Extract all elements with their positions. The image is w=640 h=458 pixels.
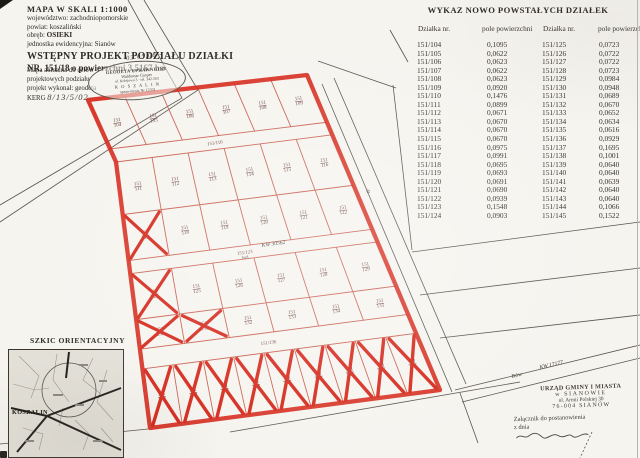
col-header-plot: Działka nr. bbox=[418, 24, 450, 33]
parcel-divider-line bbox=[200, 205, 210, 250]
unit-label: jednostka ewidencyjna: bbox=[27, 40, 93, 48]
parcel-divider-line bbox=[198, 88, 219, 136]
plot-area: 0,0903 bbox=[487, 211, 507, 220]
parcel-divider-line bbox=[271, 79, 291, 127]
crossed-plot-x bbox=[217, 359, 231, 417]
voivodeship-value: zachodniopomorskie bbox=[70, 14, 128, 22]
parcel-divider-line bbox=[266, 303, 274, 332]
ditch-label: Rów bbox=[511, 372, 524, 380]
parcel-line bbox=[318, 61, 396, 88]
scanned-map-page: { "title_block": { "scale_line": "MAPA W… bbox=[0, 0, 640, 458]
map-scale: MAPA W SKALI 1:1000 bbox=[27, 4, 245, 14]
district-value: OSIEKI bbox=[47, 31, 73, 39]
parcel-divider-line bbox=[254, 258, 266, 303]
parcel-divider-line bbox=[309, 297, 318, 326]
voivodeship-label: województwo: bbox=[27, 14, 68, 22]
parcel-table-title: WYKAZ NOWO POWSTAŁYCH DZIAŁEK bbox=[398, 5, 638, 15]
parcel-line bbox=[420, 268, 640, 295]
parcel-divider-line bbox=[353, 292, 364, 321]
col-header-plot: Działka nr. bbox=[543, 24, 575, 33]
scan-edge-line bbox=[637, 0, 638, 458]
road-abbrev-label: dr. bbox=[364, 189, 371, 196]
parcel-divider-line bbox=[238, 200, 250, 245]
parcel-line bbox=[393, 85, 412, 250]
crossed-plot-x bbox=[187, 311, 221, 341]
attachment-note: Załącznik do postanowienia z dnia bbox=[514, 412, 639, 441]
parcel-divider-line bbox=[152, 157, 161, 209]
plot-area: 0,1522 bbox=[599, 211, 619, 220]
inset-minor-roads bbox=[13, 354, 113, 450]
road-parcel-label: 151/136 bbox=[261, 340, 278, 347]
crossed-plot-x bbox=[153, 367, 171, 425]
county-label: powiat: bbox=[27, 23, 48, 31]
orientation-sketch: KOSZALIN bbox=[8, 349, 124, 458]
crossed-plot-x bbox=[410, 336, 414, 392]
district-label: obręb: bbox=[27, 31, 45, 39]
voivodeship-line: województwo: zachodniopomorskie bbox=[27, 14, 245, 23]
crossed-plot-x bbox=[249, 355, 262, 413]
plot-number: 151/145 bbox=[542, 212, 599, 221]
crossed-plot-x bbox=[185, 363, 201, 421]
parcel-divider-line bbox=[234, 83, 255, 131]
inset-area-circle bbox=[42, 363, 96, 417]
kerg-label: KERG bbox=[27, 95, 46, 102]
parcel-table-left: 151/1040,1095151/1050,0622151/1060,06231… bbox=[417, 41, 507, 220]
parcel-divider-line bbox=[277, 195, 291, 240]
office-stamp: URZĄD GMINY I MIASTA w SIANOWIE ul. Armi… bbox=[524, 382, 639, 411]
building-label: bud. bbox=[241, 254, 249, 260]
parcel-divider-line bbox=[296, 139, 315, 190]
parcel-divider-line bbox=[213, 263, 223, 308]
inset-major-roads bbox=[11, 352, 121, 452]
inset-city-label: KOSZALIN bbox=[12, 409, 48, 416]
crossed-plot-x bbox=[138, 271, 169, 318]
parcel-divider-line bbox=[161, 92, 182, 140]
inset-map: KOSZALIN bbox=[9, 350, 123, 457]
county-line: powiat: koszaliński bbox=[27, 23, 245, 32]
scan-corner-artifact bbox=[0, 451, 7, 458]
crossed-plot-x bbox=[142, 316, 177, 347]
parcel-divider-line bbox=[295, 253, 309, 298]
unit-line: jednostka ewidencyjna: Sianów bbox=[27, 40, 245, 49]
kw-number-label: KW 30562 bbox=[260, 240, 286, 249]
county-value: koszaliński bbox=[50, 23, 82, 31]
kw-number-label: KW 17177 bbox=[538, 360, 564, 371]
parcel-line bbox=[440, 315, 640, 338]
attachment-date-label: z dnia bbox=[514, 424, 530, 432]
parcel-divider-line bbox=[188, 153, 200, 205]
table-row: 151/1240,0903 bbox=[417, 212, 507, 221]
table-row: 151/1450,1522 bbox=[542, 212, 619, 221]
parcel-divider-line bbox=[336, 247, 352, 291]
parcel-divider-line bbox=[315, 190, 331, 234]
col-header-area: pole powierzchni bbox=[482, 24, 532, 33]
parcel-divider-line bbox=[260, 144, 276, 195]
crossed-plot-x bbox=[131, 212, 159, 258]
district-line: obręb: OSIEKI bbox=[27, 31, 245, 40]
col-header-area: pole powierzchni bbox=[598, 24, 640, 33]
unit-value: Sianów bbox=[95, 40, 116, 48]
road-parcel-label: 151/110 bbox=[207, 140, 224, 147]
inset-title: SZKIC ORIENTACYJNY bbox=[30, 336, 125, 345]
parcel-line bbox=[390, 30, 408, 62]
kerg-handwritten-value: 8/13/5/02 bbox=[47, 92, 89, 102]
parcel-divider-line bbox=[224, 148, 238, 199]
parcel-line bbox=[412, 222, 640, 252]
parcel-table-right: 151/1250,0723151/1260,0722151/1270,07221… bbox=[542, 41, 619, 220]
parcel-divider-line bbox=[179, 314, 184, 343]
plot-number: 151/124 bbox=[417, 212, 487, 221]
